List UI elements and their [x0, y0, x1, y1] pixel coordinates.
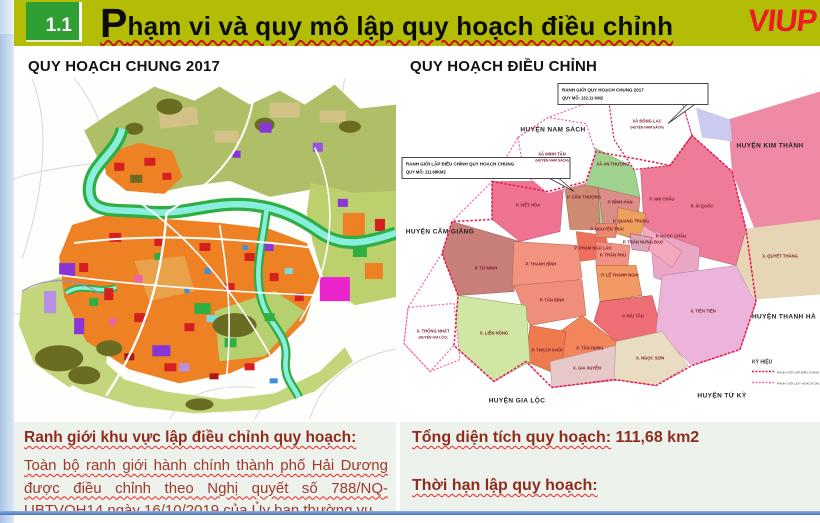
svg-text:RANH GIỚI LẬP ĐIỀU CHỈNH QUY H: RANH GIỚI LẬP ĐIỀU CHỈNH QUY HOẠCH CHUNG — [406, 160, 515, 167]
ward-label: P. LÊ THANH NGHỊ — [601, 273, 638, 278]
ward-label: XÃ MINH TÂN — [538, 152, 565, 157]
district-tu-ky: HUYỆN TỨ KỲ — [697, 391, 746, 400]
slide-title: Phạm vi và quy mô lập quy hoạch điều chỉ… — [100, 3, 673, 44]
ward-sublabel: (HUYỆN GIA LỘC) — [418, 335, 447, 340]
viup-logo: VIUP — [746, 3, 818, 39]
ward-label: P. NGUYỄN TRÃI — [590, 227, 623, 232]
map-panel-adjust: QUY HOẠCH ĐIỀU CHỈNH — [400, 52, 820, 420]
ward-label: X. QUYẾT THẮNG — [762, 254, 798, 259]
footer-right-block: Tổng diện tích quy hoạch: 111,68 km2 Thờ… — [400, 422, 820, 514]
svg-text:RANH GIỚI QUY HOẠCH CHUNG 2017: RANH GIỚI QUY HOẠCH CHUNG 2017 — [562, 86, 644, 93]
map-panel-2017: QUY HOẠCH CHUNG 2017 — [14, 52, 396, 420]
total-area-label: Tổng diện tích quy hoạch: — [412, 429, 611, 446]
ward-label: X. THỐNG NHẤT — [416, 329, 449, 334]
ward-label: P. ÁI QUỐC — [691, 204, 714, 209]
ward-label: X. TIỀN TIẾN — [690, 309, 715, 314]
ward-label: X. NGỌC SƠN — [636, 356, 664, 361]
boundary-body: Toàn bộ ranh giới hành chính thành phố H… — [24, 455, 388, 514]
ward-label: P. NHỊ CHÂU — [649, 197, 674, 202]
ward-label: P. VIỆT HÒA — [516, 203, 540, 208]
slide-header: 1.1 Phạm vi và quy mô lập quy hoạch điều… — [14, 0, 820, 46]
ward-label: XÃ AN THƯỢNG — [597, 162, 630, 167]
title-initial: P — [100, 0, 128, 46]
district-gia-loc: HUYỆN GIA LỘC — [489, 396, 546, 405]
svg-text:KÝ HIỆU: KÝ HIỆU — [752, 358, 773, 366]
ward-sublabel: (HUYỆN NAM SÁCH) — [630, 125, 663, 130]
ward-label: P. BÌNH HÀN — [607, 200, 632, 205]
ward-label: X. LIÊN HỒNG — [480, 331, 508, 336]
ward-label: P. PHẠM NGŨ LÃO — [574, 246, 612, 251]
slide-left-edge — [0, 0, 14, 523]
svg-text:RANH GIỚI LẬP ĐIỀU CHỈNH QUY H: RANH GIỚI LẬP ĐIỀU CHỈNH QUY HOẠCH CHUNG — [777, 370, 820, 375]
title-rest: hạm vi và quy mô lập quy hoạch điều chỉn… — [128, 11, 674, 41]
admin-map-adjust: RANH GIỚI QUY HOẠCH CHUNG 2017 QUY MÔ: 1… — [400, 78, 820, 416]
ward-label: XÃ ĐỒNG LẠC — [632, 119, 661, 124]
svg-text:QUY MÔ: 132.11 KM2: QUY MÔ: 132.11 KM2 — [562, 96, 604, 101]
ward-label: P. TÂN HƯNG — [576, 346, 603, 351]
svg-text:RANH GIỚI QUY HOẠCH CHUNG NĂM: RANH GIỚI QUY HOẠCH CHUNG NĂM 2017 — [777, 381, 820, 386]
ward-label: X. GIA XUYÊN — [573, 366, 601, 371]
section-number: 1.1 — [46, 15, 72, 37]
ward-label: P. CẨM THƯỢNG — [567, 195, 601, 200]
boundary-heading: Ranh giới khu vực lập điều chỉnh quy hoạ… — [24, 429, 388, 447]
ward-label: P. QUANG TRUNG — [613, 219, 649, 224]
total-area-line: Tổng diện tích quy hoạch: 111,68 km2 — [412, 429, 812, 447]
ward-sublabel: (HUYỆN NAM SÁCH) — [535, 158, 568, 163]
district-thanh-ha: HUYỆN THANH HÀ — [752, 312, 816, 321]
ward-label: P. NGỌC CHÂU — [656, 234, 686, 239]
ward-label: P. TỨ MINH — [475, 266, 497, 271]
ward-label: P. HẢI TÂN — [622, 314, 644, 319]
ward-label: P. TRẦN HƯNG ĐẠO — [623, 240, 664, 245]
left-map-title: QUY HOẠCH CHUNG 2017 — [28, 58, 220, 75]
section-number-badge: 1.1 — [26, 2, 82, 42]
presentation-slide: 1.1 Phạm vi và quy mô lập quy hoạch điều… — [0, 0, 820, 523]
landuse-map-2017 — [14, 78, 396, 420]
ward-label: P. THANH BÌNH — [526, 262, 557, 267]
right-map-title: QUY HOẠCH ĐIỀU CHỈNH — [410, 58, 597, 75]
district-nam-sach: HUYỆN NAM SÁCH — [520, 125, 585, 134]
district-kim-thanh: HUYỆN KIM THÀNH — [736, 141, 803, 150]
footer-left-block: Ranh giới khu vực lập điều chỉnh quy hoạ… — [14, 422, 396, 514]
ward-label: P. THẠCH KHÔI — [532, 348, 563, 353]
slide-bottom-bar — [0, 511, 820, 515]
total-area-value: 111,68 km2 — [611, 429, 699, 446]
district-cam-giang: HUYỆN CẨM GIÀNG — [406, 227, 474, 236]
region-le-thanh-nghi — [596, 266, 642, 302]
ward-label: P. TÂN BÌNH — [540, 298, 565, 303]
slide-title-wrap: Phạm vi và quy mô lập quy hoạch điều chỉ… — [100, 0, 673, 46]
deadline-label: Thời hạn lập quy hoạch: — [412, 477, 812, 495]
svg-text:QUY MÔ: 111.68KM2: QUY MÔ: 111.68KM2 — [406, 170, 446, 175]
ward-label: P. TRẦN PHÚ — [600, 253, 626, 258]
